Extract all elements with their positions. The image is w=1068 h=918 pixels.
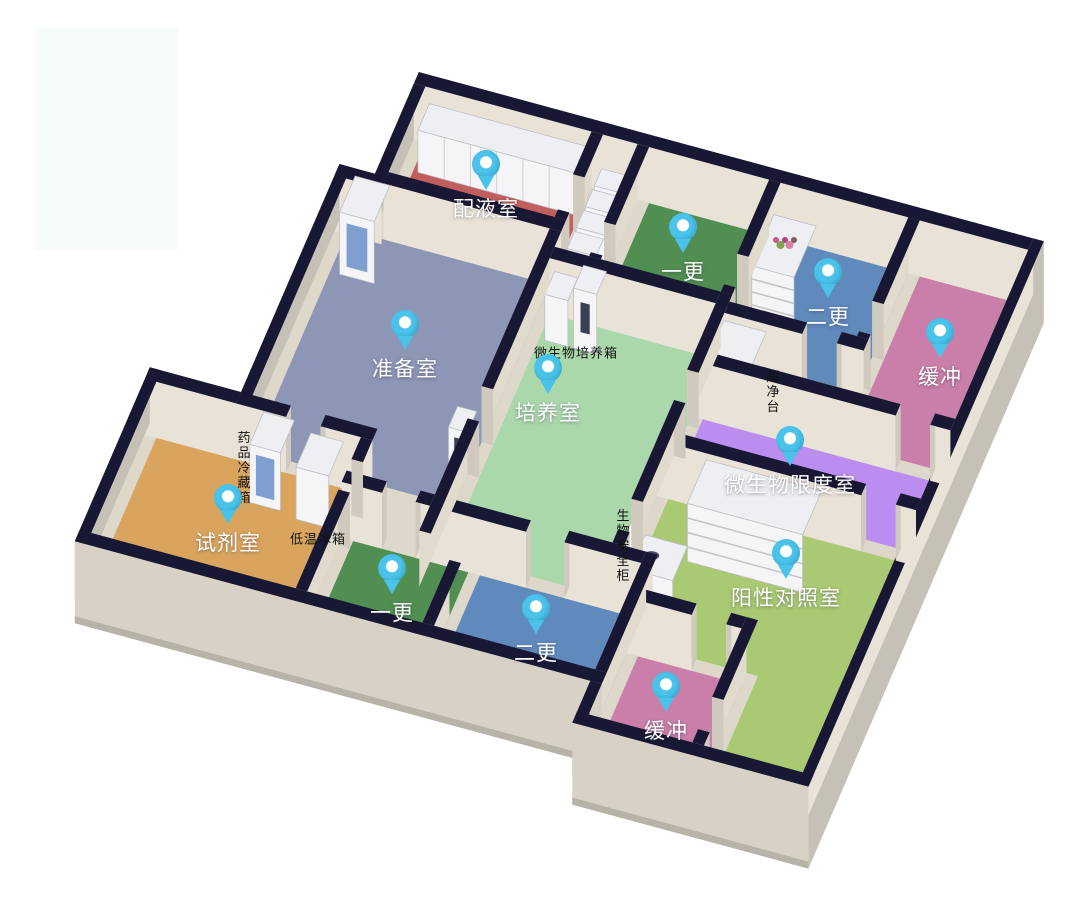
pin-ball-icon [214,484,242,512]
pin-ball-icon [669,213,697,241]
wall-endcap [692,604,697,671]
location-pin-shijishi[interactable] [213,484,243,526]
room-label-yigeng-bottom: 一更 [370,597,414,627]
wall-endcap [382,481,387,548]
location-pin-huanchong-bottom[interactable] [651,672,681,714]
room-label-zhunbeishi: 准备室 [372,353,438,383]
pin-ball-icon [926,318,954,346]
pin-ball-icon [472,150,500,178]
pin-tail-icon [528,620,544,634]
location-pin-huanchong-top[interactable] [925,318,955,360]
room-label-peiyeshi: 配液室 [453,193,519,223]
location-pin-peiyeshi[interactable] [471,150,501,192]
floorplan-canvas [0,0,1068,918]
wall-endcap [737,254,749,313]
wall-endcap [872,301,884,360]
pin-tail-icon [220,510,236,524]
location-pin-ergeng-bottom[interactable] [521,594,551,636]
wall-endcap [352,459,364,518]
pin-tail-icon [778,565,794,579]
pin-tail-icon [782,452,798,466]
equipment-door [347,223,368,272]
pin-tail-icon [675,239,691,253]
pin-ball-icon [652,672,680,700]
equipment-incubator-a [545,294,568,346]
flowers-decor [791,237,797,243]
room-label-yangxing-duizhaoshi: 阳性对照室 [731,582,841,612]
location-pin-peiyangshi[interactable] [533,354,563,396]
room-label-yigeng-top: 一更 [661,256,705,286]
wall-endcap [482,386,494,445]
location-pin-weishengwu-xiandushi[interactable] [775,426,805,468]
pin-tail-icon [820,284,836,298]
equipment-label-diwen-bingxiang: 低温冰箱 [290,529,346,548]
wall-endcap [687,370,699,429]
location-pin-ergeng-top[interactable] [813,258,843,300]
equipment-slot [581,302,590,334]
pin-ball-icon [378,554,406,582]
room-label-ergeng-bottom: 二更 [514,637,558,667]
equipment-label-shengwu-anquangui: 生物安全柜 [613,509,632,584]
equipment-freezer [296,467,329,528]
pin-tail-icon [658,698,674,712]
room-label-peiyangshi: 培养室 [515,397,581,427]
pin-tail-icon [384,580,400,594]
location-pin-yangxing-duizhaoshi[interactable] [771,539,801,581]
room-label-huanchong-top: 缓冲 [918,361,962,391]
room-label-ergeng-top: 二更 [806,301,850,331]
wall-endcap [896,404,901,471]
location-pin-yigeng-top[interactable] [668,213,698,255]
pin-ball-icon [391,310,419,338]
pin-ball-icon [772,539,800,567]
pin-tail-icon [478,176,494,190]
location-pin-yigeng-bottom[interactable] [377,554,407,596]
equipment-label-chaojingtai: 超净台 [763,370,782,415]
room-label-shijishi: 试剂室 [195,527,261,557]
room-label-huanchong-bottom: 缓冲 [644,715,688,745]
wall-endcap [286,406,291,473]
wall-endcap [712,697,724,756]
equipment-door [256,455,274,501]
pin-ball-icon [814,258,842,286]
pin-tail-icon [540,380,556,394]
pin-ball-icon [776,426,804,454]
pin-tail-icon [932,344,948,358]
pin-ball-icon [522,594,550,622]
wall-endcap [526,520,531,587]
wall-endcap [861,484,866,551]
room-label-weishengwu-xiandushi: 微生物限度室 [724,469,856,499]
floorplan-page: 配液室一更二更缓冲微生物限度室培养室准备室试剂室一更二更阳性对照室缓冲微生物培养… [0,0,1068,918]
pin-tail-icon [397,336,413,350]
location-pin-zhunbeishi[interactable] [390,310,420,352]
pin-ball-icon [534,354,562,382]
